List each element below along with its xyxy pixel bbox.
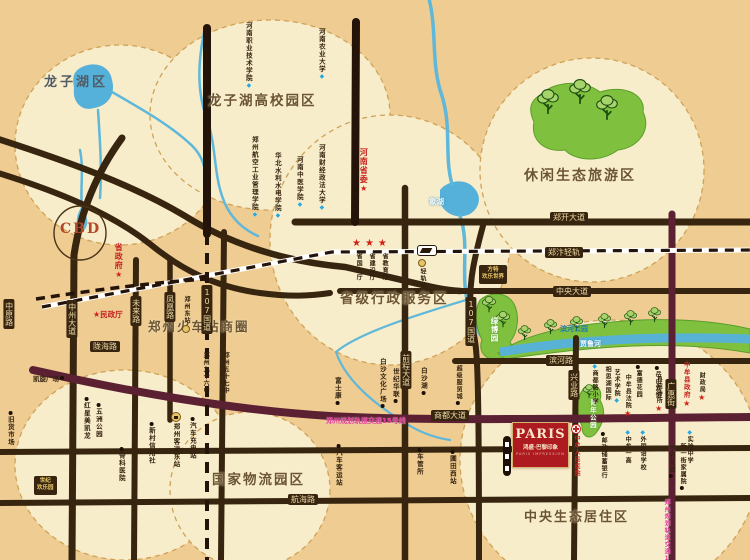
road-g107-new-text: 107国道 <box>467 300 476 343</box>
henan-agricultural-university: 河南农业大学◆ <box>318 28 325 80</box>
dia-icon: ◆ <box>274 212 280 219</box>
dot-icon <box>60 376 64 380</box>
road-weilai-road: 未来路 <box>130 296 141 326</box>
shangdu-road-primary-school-text: 商都路小学 <box>591 370 598 405</box>
finance-bureau-text: 财政局 <box>698 372 705 393</box>
project-location-marker <box>503 436 511 476</box>
zhongmu-no1-high-school: ◆中牟一高 <box>624 429 630 464</box>
lightrail-station-icon <box>417 245 437 256</box>
county-guesthouse: 县招待所★ <box>654 376 662 413</box>
dia-icon: ◆ <box>296 201 302 208</box>
dot-icon <box>119 447 123 451</box>
dot-icon <box>456 401 460 405</box>
dot-icon <box>335 401 339 405</box>
century-amusement-park-text: 欢乐园 <box>37 485 54 492</box>
metro-line15-label-west: 郑州规划轨道交通15号线 <box>326 418 406 425</box>
metro-line15-label-south: 郑州规划轨道交通15号线 <box>663 499 669 560</box>
foreign-language-school: ◆外国语学校 <box>639 429 645 471</box>
road-qiancheng-avenue-text: 前程大道 <box>402 354 411 386</box>
cbd-label: CBD <box>60 222 101 237</box>
zhengzhou-no57-middle-school-text: 郑州五十七中 <box>222 352 229 394</box>
secondhand-market: 旧货市场 <box>7 410 14 446</box>
henan-provincial-committee: 河南省委★ <box>359 148 367 193</box>
dia-icon: ◆ <box>251 211 257 218</box>
district-longzihu-text: 龙子湖区 <box>44 75 108 90</box>
dia-icon: ◆ <box>624 429 630 436</box>
henan-provincial-committee-text: 河南省委 <box>359 148 368 184</box>
dia-icon: ◆ <box>686 429 692 436</box>
road-hanghai-road: 航海路 <box>288 494 318 505</box>
dia-icon: ◆ <box>245 82 251 89</box>
district-railway-station-business-text: 郑州火车站商圈 <box>148 319 250 334</box>
orthopedic-hospital-text: 骨科医院 <box>117 452 125 482</box>
postal-savings-bank: 邮政储蓄银行 <box>600 431 606 479</box>
county-guesthouse-text: 县招待所 <box>655 376 662 404</box>
road-zhongzhou-avenue: 中州大道 <box>66 300 77 338</box>
provincial-government: 省政府★ <box>114 243 122 279</box>
dia-icon: ◆ <box>613 397 619 404</box>
civil-affairs-dept: ★民政厅 <box>93 311 123 319</box>
auto-passenger-station-text: 汽车客运站 <box>334 449 342 487</box>
baisha-culture-plaza-text: 白沙文化广场 <box>378 358 386 403</box>
lightrail-station: 轻轨站 <box>418 258 426 289</box>
art-college: 艺术学院◆ <box>613 369 619 404</box>
star-icon: ★ <box>682 399 690 408</box>
binhe-park-label: 滨河公园 <box>560 326 588 333</box>
district-provincial-admin-service: 省级行政服务区 <box>340 292 449 306</box>
henan-univ-economics-law-text: 河南财经政法大学 <box>317 144 325 204</box>
dia-icon: ◆ <box>639 429 645 436</box>
project-logo-sub: PARIS IMPRESSION <box>513 452 568 456</box>
dia-icon: ◆ <box>591 363 597 370</box>
xincun-credit-union: 新村信用社 <box>148 421 155 465</box>
dot-icon <box>336 444 340 448</box>
experimental-middle-school: ◆实验中学 <box>686 429 692 464</box>
district-central-eco-residential-text: 中央生态居住区 <box>524 510 629 525</box>
road-zhengbian-lightrail-text: 郑汴轻轨 <box>548 248 580 257</box>
star-icon: ★ <box>654 404 662 413</box>
vehicle-admin-office-text: 车管所 <box>415 453 423 476</box>
orthopedic-hospital: 骨科医院 <box>118 446 125 482</box>
foxconn: 富士康 <box>334 377 341 406</box>
road-fenghuang-road-text: 凤凰路 <box>166 295 175 319</box>
vehicle-admin-office: 车管所 <box>416 447 423 476</box>
xiang-lake-label-text: 象湖 <box>429 197 444 206</box>
hongxing-macalline-text: 红星美凯龙 <box>82 402 90 440</box>
road-zhengkai-avenue-text: 郑开大道 <box>553 213 585 222</box>
district-national-logistics-park: 国家物流园区 <box>212 473 305 487</box>
super-trade-city: 超级服贸城 <box>455 365 461 406</box>
road-guanghui-street: 广惠街 <box>665 379 676 409</box>
henan-tcm-college: 河南中医学院◆ <box>296 156 303 208</box>
jialu-river-label-text: 贾鲁河 <box>580 340 601 348</box>
road-central-avenue: 中央大道 <box>553 286 591 297</box>
shangdu-road-primary-school: ◆商都路小学 <box>591 363 597 405</box>
experimental-middle-school-text: 实验中学 <box>686 436 693 464</box>
xinyijie-family-compound: 新一街家属院 <box>679 443 685 491</box>
zhengzhou-east-station: 郑州东站 <box>182 296 190 334</box>
binhe-park-label-text: 滨河公园 <box>560 325 588 333</box>
henan-agricultural-university-text: 河南农业大学 <box>317 28 325 73</box>
dept-land-resources-text: 省国土厅 <box>355 253 362 281</box>
henan-univ-economics-law: 河南财经政法大学◆ <box>318 144 325 211</box>
gold-icon <box>418 259 426 267</box>
putian-west-station: 圃田西站 <box>449 449 456 485</box>
road-zhengkai-avenue: 郑开大道 <box>550 212 588 223</box>
road-qiancheng-avenue: 前程大道 <box>400 351 411 389</box>
gold-icon <box>182 325 190 333</box>
star-icon: ★ <box>114 270 122 279</box>
road-shangdu-avenue-text: 商都大道 <box>434 411 466 420</box>
district-longzihu-university-park: 龙子湖高校园区 <box>208 94 317 108</box>
star-icon: ★ <box>697 393 705 402</box>
baisha-lake-text: 白沙湖 <box>419 367 427 390</box>
zhengzhou-no96-middle-school: 郑州九十六中 <box>202 352 208 394</box>
district-leisure-eco-tourism: 休闲生态旅游区 <box>524 169 636 184</box>
district-central-eco-residential: 中央生态居住区 <box>524 511 629 525</box>
dot-icon <box>149 422 153 426</box>
dot-icon <box>669 474 673 478</box>
star-icon: ★ <box>623 409 631 418</box>
dot-icon <box>96 403 100 407</box>
finance-bureau: 财政局★ <box>697 372 705 402</box>
project-logo-cn: 鸿盛·巴黎印象 <box>513 443 568 451</box>
foxconn-text: 富士康 <box>333 377 341 400</box>
art-college-text: 艺术学院 <box>613 369 620 397</box>
metro-line15-label-west-text: 郑州规划轨道交通15号线 <box>326 417 406 425</box>
cbd-label-text: CBD <box>60 221 101 237</box>
dot-icon <box>190 417 194 421</box>
dept-education-text: 省教育厅 <box>381 253 388 281</box>
north-china-water-univ: 华北水利水电学院◆ <box>274 152 281 219</box>
auto-passenger-station: 汽车客运站 <box>335 443 342 487</box>
fantawild-adventure: 方特欢乐世界 <box>479 265 507 284</box>
fude-garden-text: 富德花园 <box>635 370 642 398</box>
dot-icon <box>636 365 640 369</box>
xuefu-garden-text: 学府花园 <box>668 445 675 473</box>
location-map: PARIS 鸿盛·巴黎印象 PARIS IMPRESSION 龙子湖区龙子湖高校… <box>0 0 750 560</box>
civil-affairs-dept-text: 民政厅 <box>100 310 123 319</box>
dept-construction-text: 省建设厅 <box>368 253 375 281</box>
dia-icon: ◆ <box>318 204 324 211</box>
dot-icon <box>417 448 421 452</box>
wuzhou-park-text: 五洲公园 <box>94 408 102 438</box>
henan-vocational-tech-college-text: 河南职业技术学院 <box>244 22 252 82</box>
dot-icon <box>84 397 88 401</box>
zhengzhou-no96-middle-school-text: 郑州九十六中 <box>202 352 209 394</box>
hongxing-macalline: 红星美凯龙 <box>83 396 90 440</box>
xiangsihu-international-text: 相思湖国际 <box>604 366 611 401</box>
road-longhai-road: 陇海路 <box>90 341 120 352</box>
project-logo-en: PARIS <box>513 428 568 441</box>
lightrail-station-text: 轻轨站 <box>419 268 426 289</box>
zhongmu-county-court: 中牟县法院★ <box>623 374 631 418</box>
fude-garden: 富德花园 <box>635 364 641 398</box>
zhongmu-county-government-text: 中牟县政府 <box>682 361 690 399</box>
road-binhe-road: 滨河路 <box>546 355 576 366</box>
jialu-river-label: 贾鲁河 <box>580 341 601 348</box>
kaixuan-plaza-text: 凯旋广场 <box>33 375 59 383</box>
dot-icon <box>655 366 659 370</box>
dept-stars: ★★★ <box>352 233 391 250</box>
district-national-logistics-park-text: 国家物流园区 <box>212 472 305 488</box>
zhongmu-no1-high-school-text: 中牟一高 <box>624 436 631 464</box>
district-longzihu: 龙子湖区 <box>44 76 108 90</box>
super-trade-city-text: 超级服贸城 <box>455 365 462 400</box>
road-zhongzhou-avenue-text: 中州大道 <box>68 303 77 335</box>
provincial-government-text: 省政府 <box>114 243 123 270</box>
dot-icon <box>380 404 384 408</box>
dia-icon: ◆ <box>318 73 324 80</box>
road-xingye-street: 兴业路 <box>568 370 579 400</box>
north-china-water-univ-text: 华北水利水电学院 <box>273 152 281 212</box>
dot-icon <box>601 432 605 436</box>
century-amusement-park: 世纪欢乐园 <box>34 476 57 495</box>
putian-west-station-text: 圃田西站 <box>448 455 456 485</box>
zhengzhou-no57-middle-school: 郑州五十七中 <box>222 352 228 394</box>
xinyijie-family-compound-text: 新一街家属院 <box>679 443 686 485</box>
wuzhou-park: 五洲公园 <box>95 402 102 438</box>
dot-icon <box>421 391 425 395</box>
henan-tcm-college-text: 河南中医学院 <box>295 156 303 201</box>
auto-station: 汽车充电站 <box>189 416 196 460</box>
postal-savings-bank-text: 邮政储蓄银行 <box>600 437 607 479</box>
foreign-language-school-text: 外国语学校 <box>639 436 646 471</box>
zhongmu-peoples-hospital: 中牟人民医院 <box>571 423 581 477</box>
xincun-credit-union-text: 新村信用社 <box>147 427 155 465</box>
dept-construction: 省建设厅 <box>368 253 374 281</box>
zhengzhou-east-bus-station: 郑州客运东站 <box>171 411 181 468</box>
district-longzihu-university-park-text: 龙子湖高校园区 <box>208 93 317 109</box>
road-zhongyuan-road: 中原路 <box>3 299 14 329</box>
road-zhengbian-lightrail: 郑汴轻轨 <box>545 247 583 258</box>
century-hualian: 世纪华联 <box>392 368 399 404</box>
henan-vocational-tech-college: 河南职业技术学院◆ <box>245 22 252 89</box>
road-fenghuang-road: 凤凰路 <box>164 292 175 322</box>
dot-icon <box>680 486 684 490</box>
road-g107-text: 107国道 <box>203 288 212 331</box>
road-guanghui-street-text: 广惠街 <box>667 382 676 406</box>
dept-land-resources: 省国土厅 <box>355 253 361 281</box>
fantawild-adventure-text: 欢乐世界 <box>482 274 504 281</box>
district-railway-station-business: 郑州火车站商圈 <box>148 320 250 333</box>
road-xingye-street-text: 兴业路 <box>570 373 579 397</box>
road-weilai-road-text: 未来路 <box>132 299 141 323</box>
district-provincial-admin-service-text: 省级行政服务区 <box>340 291 449 307</box>
xiang-lake-label: 象湖 <box>429 198 444 206</box>
dot-icon <box>8 411 12 415</box>
zhengzhou-aeronautics-institute-text: 郑州航空工业管理学院 <box>250 136 258 211</box>
zhengzhou-east-station-text: 郑州东站 <box>183 296 190 324</box>
zhengzhou-east-bus-station-text: 郑州客运东站 <box>172 423 180 468</box>
district-leisure-eco-tourism-text: 休闲生态旅游区 <box>524 168 636 184</box>
auto-station-text: 汽车充电站 <box>188 422 196 460</box>
cross-icon <box>571 424 581 434</box>
road-g107-new: 107国道 <box>465 297 476 346</box>
zhongmu-peoples-hospital-text: 中牟人民医院 <box>573 435 580 477</box>
metro-line15-label-south-text: 郑州规划轨道交通15号线 <box>663 499 670 560</box>
century-hualian-text: 世纪华联 <box>391 368 399 398</box>
dept-education: 省教育厅 <box>381 253 387 281</box>
dot-icon <box>393 399 397 403</box>
secondhand-market-text: 旧货市场 <box>6 416 14 446</box>
road-zhongyuan-road-text: 中原路 <box>5 302 14 326</box>
road-hanghai-road-text: 航海路 <box>291 495 315 504</box>
road-longhai-road-text: 陇海路 <box>93 342 117 351</box>
road-shangdu-avenue: 商都大道 <box>431 410 469 421</box>
bus-icon <box>171 412 181 422</box>
xiangsihu-international: 相思湖国际 <box>604 366 610 401</box>
lvbo-garden-label-text: 绿博园 <box>490 317 499 343</box>
baisha-culture-plaza: 白沙文化广场 <box>379 358 386 409</box>
dept-stars-text: ★★★ <box>352 238 391 249</box>
baisha-lake: 白沙湖 <box>420 367 427 396</box>
road-g107: 107国道 <box>201 285 212 334</box>
project-logo: PARIS 鸿盛·巴黎印象 PARIS IMPRESSION <box>512 422 569 468</box>
zhongmu-county-court-text: 中牟县法院 <box>624 374 631 409</box>
road-central-avenue-text: 中央大道 <box>556 287 588 296</box>
lvbo-garden-label: 绿博园 <box>490 317 498 343</box>
dot-icon <box>450 450 454 454</box>
zhongmu-county-government: 中牟县政府★ <box>682 361 690 408</box>
xuefu-garden: 学府花园 <box>668 445 674 479</box>
zhengzhou-aeronautics-institute: 郑州航空工业管理学院◆ <box>251 136 258 218</box>
kaixuan-plaza: 凯旋广场 <box>33 375 65 383</box>
star-icon: ★ <box>359 184 367 193</box>
road-binhe-road-text: 滨河路 <box>549 356 573 365</box>
